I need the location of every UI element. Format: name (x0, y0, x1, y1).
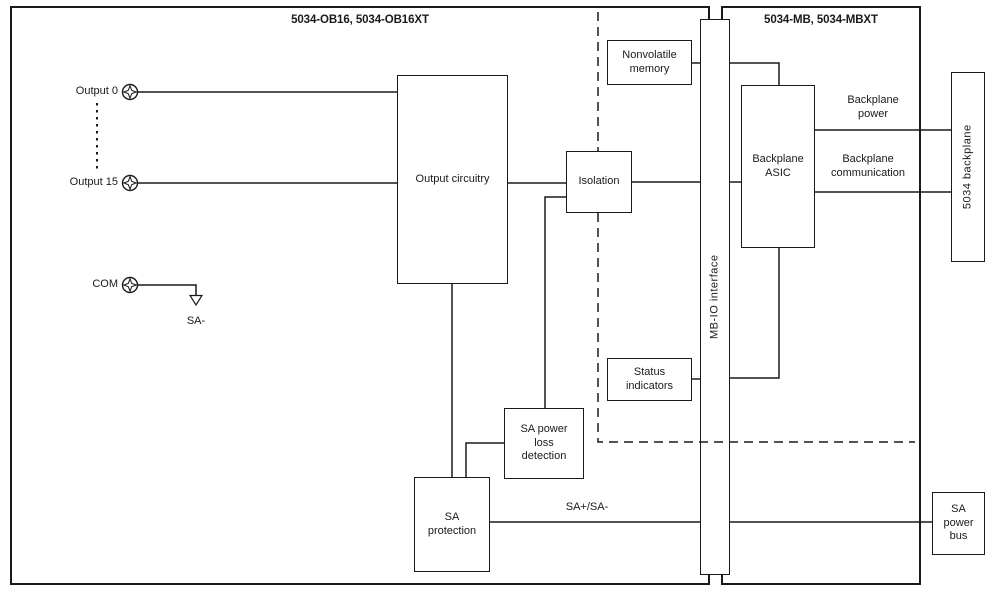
block-nonvolatile-memory: Nonvolatile memory (607, 40, 692, 85)
block-sa-protection: SA protection (414, 477, 490, 572)
wire-asic-bottom-to-mbio (730, 248, 779, 378)
backplane-communication-label: Backplane communication (813, 153, 923, 180)
terminal-output0-icon (123, 85, 138, 100)
wire-isolation-to-sa-loss (545, 197, 566, 408)
terminal-output15-icon (123, 176, 138, 191)
block-backplane-asic-label: Backplane ASIC (752, 153, 803, 180)
block-backplane-asic: Backplane ASIC (741, 85, 815, 248)
block-status-indicators: Status indicators (607, 358, 692, 401)
block-diagram: 5034-OB16, 5034-OB16XT 5034-MB, 5034-MBX… (0, 0, 1000, 593)
backplane-power-label: Backplane power (823, 94, 923, 121)
block-output-circuitry-label: Output circuitry (416, 173, 490, 187)
terminal-output15-label: Output 15 (38, 176, 118, 190)
right-section-title: 5034-MB, 5034-MBXT (721, 14, 921, 26)
block-isolation: Isolation (566, 151, 632, 213)
block-mbio-interface: MB-IO interface (700, 19, 730, 575)
block-status-indicators-label: Status indicators (626, 366, 673, 393)
block-sa-protection-label: SA protection (428, 511, 476, 538)
block-sa-power-loss-detection-label: SA power loss detection (520, 423, 567, 464)
block-output-circuitry: Output circuitry (397, 75, 508, 284)
block-isolation-label: Isolation (579, 175, 620, 189)
block-nonvolatile-memory-label: Nonvolatile memory (622, 49, 676, 76)
left-section-title: 5034-OB16, 5034-OB16XT (10, 14, 710, 26)
block-mbio-interface-label: MB-IO interface (708, 255, 722, 340)
block-sa-power-bus-label: SA power bus (944, 503, 974, 544)
terminal-com-label: COM (38, 278, 118, 292)
block-5034-backplane: 5034 backplane (951, 72, 985, 262)
wire-mbio-to-asic-top (730, 63, 779, 85)
block-sa-power-bus: SA power bus (932, 492, 985, 555)
block-sa-power-loss-detection: SA power loss detection (504, 408, 584, 479)
ground-sa-minus-label: SA- (171, 315, 221, 329)
wire-com-to-ground (138, 285, 196, 295)
block-5034-backplane-label: 5034 backplane (961, 125, 975, 210)
ground-arrow-icon (190, 296, 202, 306)
terminal-output0-label: Output 0 (38, 85, 118, 99)
wire-sa-loss-to-sa-protection (466, 443, 504, 477)
sa-bus-label: SA+/SA- (547, 501, 627, 515)
terminal-com-icon (123, 278, 138, 293)
